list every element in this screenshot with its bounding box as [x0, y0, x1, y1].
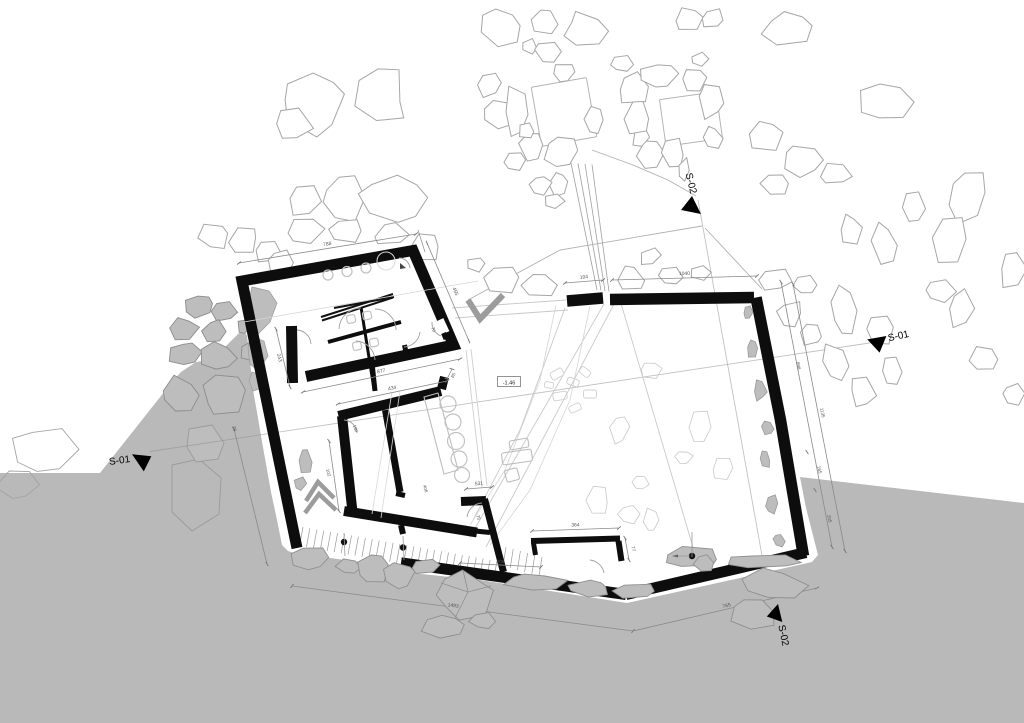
- svg-text:364: 364: [571, 522, 580, 528]
- svg-text:-1.46: -1.46: [503, 381, 516, 387]
- svg-text:104: 104: [580, 274, 589, 281]
- svg-text:205: 205: [497, 559, 505, 564]
- svg-text:531: 531: [475, 481, 484, 488]
- svg-text:1040: 1040: [679, 271, 691, 277]
